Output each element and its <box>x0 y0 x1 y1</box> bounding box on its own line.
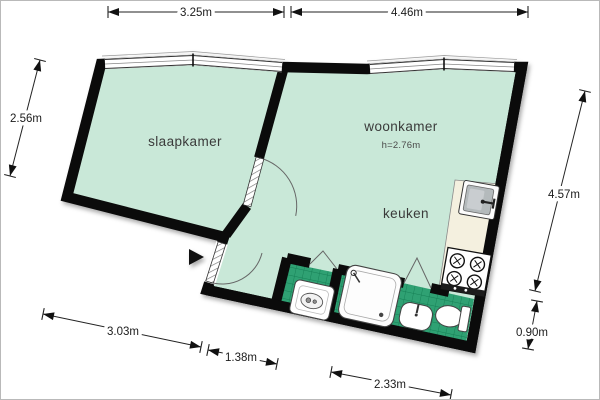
building <box>67 52 522 348</box>
label-slaapkamer: slaapkamer <box>148 134 222 149</box>
floor-plan-image: slaapkamer woonkamer h=2.76m keuken 3.25… <box>0 0 600 400</box>
dim-right: 4.57m <box>529 90 591 293</box>
svg-text:3.03m: 3.03m <box>107 326 139 338</box>
dim-top-right: 4.46m <box>291 6 528 19</box>
entrance-arrow-icon <box>189 249 204 265</box>
dim-left: 2.56m <box>4 59 46 178</box>
dim-bottom-center: 1.38m <box>207 344 278 370</box>
dim-bottom-left: 3.03m <box>42 308 202 353</box>
svg-text:2.56m: 2.56m <box>10 113 42 125</box>
label-keuken: keuken <box>383 206 429 221</box>
svg-text:1.38m: 1.38m <box>225 352 257 364</box>
dim-top-left: 3.25m <box>108 6 284 19</box>
svg-text:4.46m: 4.46m <box>391 7 423 19</box>
shower <box>337 264 403 329</box>
svg-text:3.25m: 3.25m <box>180 7 212 19</box>
svg-text:0.90m: 0.90m <box>516 327 548 339</box>
stove <box>441 247 492 296</box>
label-woonkamer-height: h=2.76m <box>382 140 421 151</box>
svg-text:2.33m: 2.33m <box>374 379 406 391</box>
svg-text:4.57m: 4.57m <box>548 189 580 201</box>
kitchen-sink <box>458 180 499 220</box>
floor-plan: slaapkamer woonkamer h=2.76m keuken 3.25… <box>1 1 600 400</box>
label-woonkamer: woonkamer <box>363 119 437 134</box>
dim-bottom-right: 2.33m <box>330 366 452 400</box>
dim-right-lower: 0.90m <box>516 300 548 350</box>
